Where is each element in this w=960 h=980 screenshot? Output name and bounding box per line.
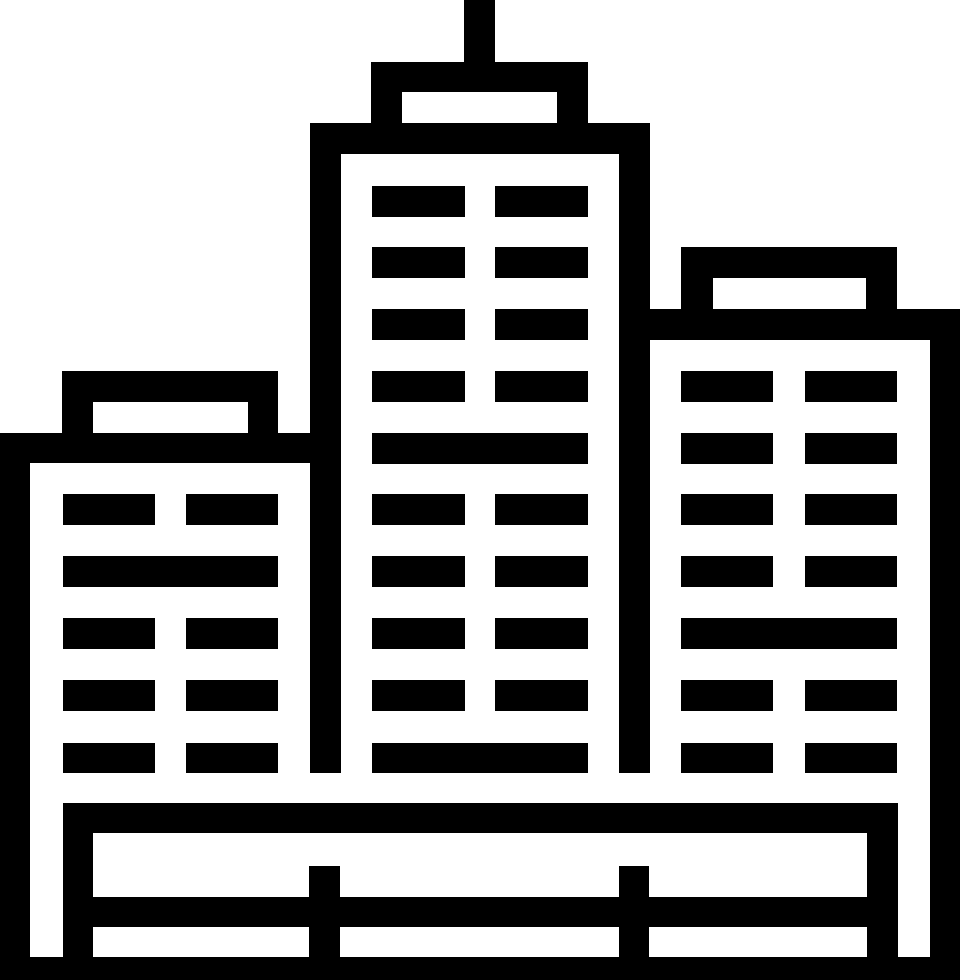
right-window (681, 494, 773, 525)
center-window (372, 186, 465, 217)
right-window (805, 680, 897, 711)
right-window (681, 743, 773, 773)
right-window (805, 743, 897, 773)
base-top-bar (63, 803, 898, 833)
base-wall-left (63, 833, 93, 958)
center-antenna (464, 0, 495, 62)
center-window (495, 247, 588, 278)
center-cap-top (371, 62, 588, 92)
left-window (63, 743, 155, 773)
center-window (372, 494, 465, 525)
left-window (186, 494, 278, 525)
right-window (681, 680, 773, 711)
center-wall-left (310, 154, 341, 773)
center-window (495, 494, 588, 525)
center-window (495, 556, 588, 587)
right-window (805, 371, 897, 402)
right-window (805, 494, 897, 525)
left-window-wide (63, 556, 278, 587)
right-cap-wall-right (866, 278, 897, 309)
left-window (63, 494, 155, 525)
left-roof (0, 433, 340, 463)
center-wall-right (619, 154, 650, 773)
left-window (186, 618, 278, 649)
icon-canvas (0, 0, 960, 980)
city-buildings-icon (0, 0, 960, 980)
base-wall-right (867, 833, 898, 958)
left-window (186, 680, 278, 711)
right-window (805, 433, 897, 464)
center-window (495, 680, 588, 711)
right-wall-right (930, 340, 960, 980)
center-roof (310, 123, 650, 154)
right-window (681, 556, 773, 587)
center-window (495, 186, 588, 217)
center-window (372, 371, 465, 402)
center-window (372, 680, 465, 711)
center-cap-wall-left (371, 92, 402, 123)
left-cap-top (62, 371, 278, 402)
center-window (372, 556, 465, 587)
left-window (186, 743, 278, 773)
right-window (681, 371, 773, 402)
right-roof (650, 309, 960, 340)
center-window (495, 371, 588, 402)
base-rail (93, 897, 898, 927)
left-wall-left (0, 463, 30, 980)
right-window (681, 433, 773, 464)
center-window-wide (372, 743, 588, 773)
base-post-left (309, 866, 340, 958)
center-window (372, 309, 465, 340)
left-window (63, 680, 155, 711)
right-cap-wall-left (681, 278, 713, 309)
center-window (495, 309, 588, 340)
base-bottom-bar (0, 957, 960, 980)
right-cap-top (681, 247, 897, 278)
base-post-right (619, 866, 649, 958)
center-cap-wall-right (557, 92, 588, 123)
right-window (805, 556, 897, 587)
center-window (372, 247, 465, 278)
center-window (495, 618, 588, 649)
left-window (63, 618, 155, 649)
center-window-wide (372, 433, 588, 464)
center-window (372, 618, 465, 649)
left-cap-wall-left (62, 402, 93, 433)
right-window-wide (681, 618, 897, 649)
left-cap-wall-right (248, 402, 278, 433)
